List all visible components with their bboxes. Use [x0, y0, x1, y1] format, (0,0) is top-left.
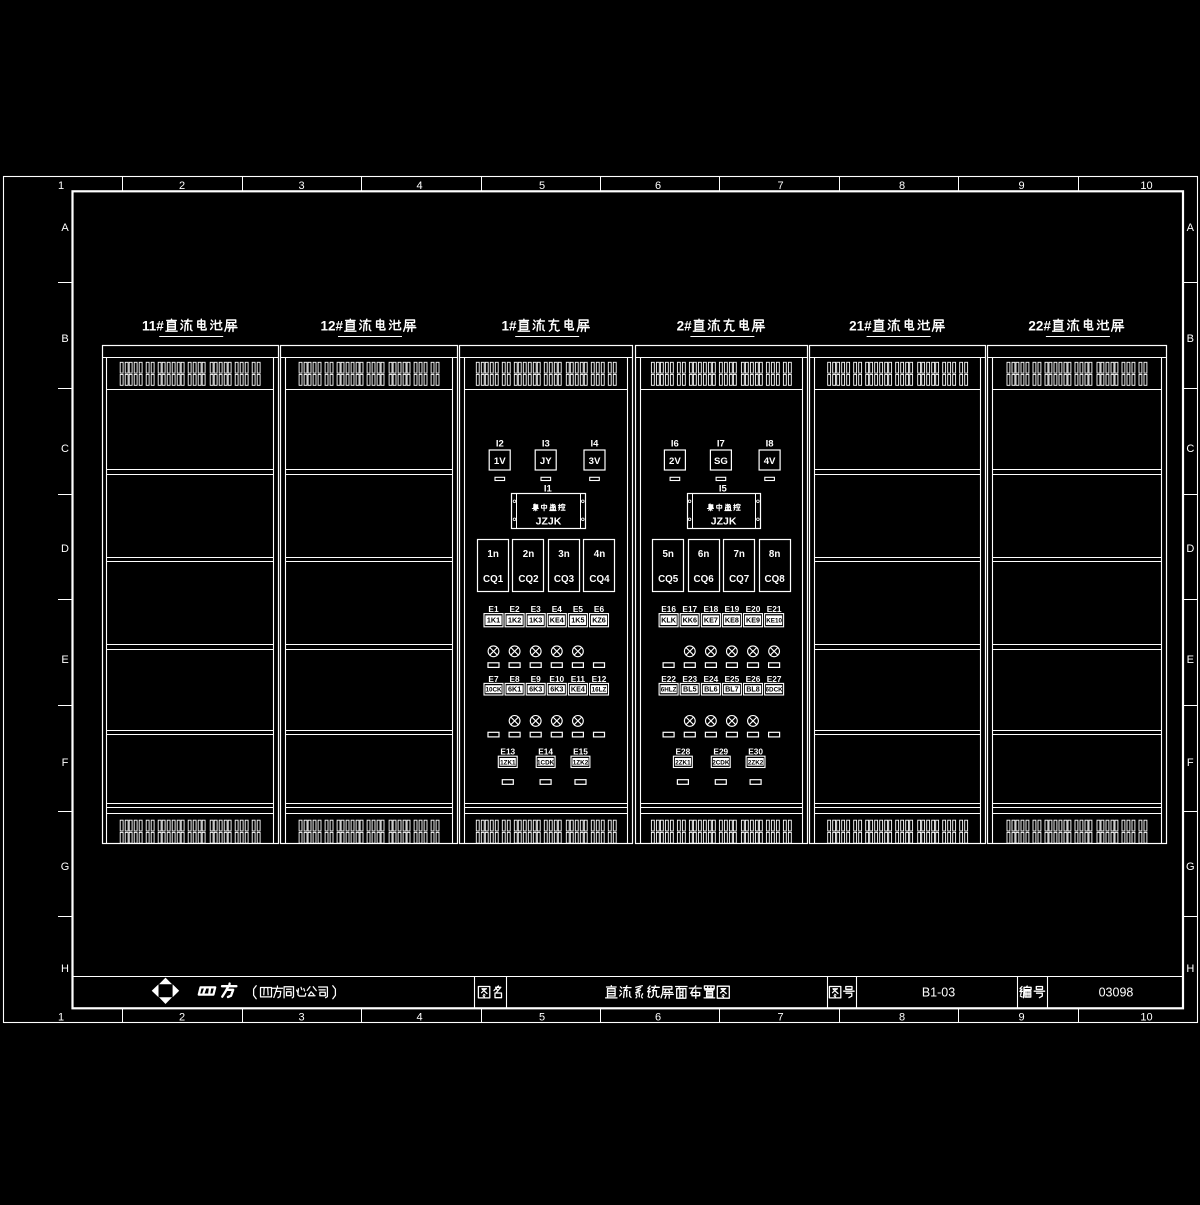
svg-text:G: G	[1186, 861, 1195, 873]
svg-text:E17: E17	[682, 604, 697, 614]
svg-text:E27: E27	[767, 674, 782, 684]
svg-text:KE7: KE7	[704, 616, 718, 625]
svg-text:9: 9	[1018, 1011, 1024, 1023]
svg-text:12#: 12#	[321, 319, 344, 334]
svg-text:E19: E19	[725, 604, 740, 614]
svg-text:4: 4	[416, 180, 422, 192]
svg-text:CQ2: CQ2	[518, 574, 539, 585]
svg-text:2V: 2V	[669, 456, 681, 467]
svg-text:1#: 1#	[501, 319, 517, 334]
svg-text:E15: E15	[573, 747, 588, 757]
svg-text:E: E	[61, 654, 68, 666]
svg-text:E12: E12	[592, 674, 607, 684]
svg-text:5: 5	[539, 180, 545, 192]
svg-text:2ZK2: 2ZK2	[748, 759, 764, 766]
svg-text:6: 6	[655, 180, 661, 192]
svg-text:E14: E14	[538, 747, 553, 757]
svg-text:E: E	[1187, 654, 1194, 666]
svg-text:E9: E9	[531, 674, 542, 684]
svg-text:I6: I6	[671, 438, 679, 449]
svg-text:KE8: KE8	[725, 616, 739, 625]
svg-text:I4: I4	[591, 438, 600, 449]
svg-text:E21: E21	[767, 604, 782, 614]
svg-text:E29: E29	[713, 747, 728, 757]
svg-text:1K1: 1K1	[487, 616, 500, 625]
svg-text:I2: I2	[496, 438, 504, 449]
svg-text:21#: 21#	[849, 319, 872, 334]
svg-text:4: 4	[416, 1011, 422, 1023]
svg-text:E24: E24	[704, 674, 719, 684]
svg-text:7n: 7n	[733, 549, 744, 560]
svg-text:B: B	[1187, 333, 1194, 345]
svg-text:2ZK1: 2ZK1	[675, 759, 691, 766]
svg-text:I8: I8	[766, 438, 774, 449]
svg-text:JZJK: JZJK	[536, 515, 562, 527]
svg-text:E4: E4	[552, 604, 563, 614]
svg-text:6HLZ: 6HLZ	[661, 687, 677, 694]
svg-text:B1-03: B1-03	[922, 986, 955, 1000]
svg-text:6K3: 6K3	[550, 685, 563, 694]
svg-text:6K1: 6K1	[508, 685, 521, 694]
svg-text:G: G	[61, 861, 70, 873]
svg-text:1n: 1n	[487, 549, 498, 560]
svg-text:3: 3	[298, 180, 304, 192]
svg-text:B: B	[61, 333, 68, 345]
svg-text:5: 5	[539, 1011, 545, 1023]
svg-text:5n: 5n	[662, 549, 673, 560]
svg-text:E28: E28	[676, 747, 691, 757]
svg-text:C: C	[61, 443, 69, 455]
svg-text:JZJK: JZJK	[711, 515, 737, 527]
svg-text:2n: 2n	[523, 549, 534, 560]
svg-text:2: 2	[179, 180, 185, 192]
svg-text:CQ3: CQ3	[554, 574, 575, 585]
svg-text:KE9: KE9	[746, 616, 760, 625]
svg-text:2CDK: 2CDK	[712, 759, 730, 766]
svg-text:7: 7	[777, 1011, 783, 1023]
svg-text:1: 1	[58, 1011, 64, 1023]
svg-text:H: H	[61, 963, 69, 975]
svg-text:E16: E16	[661, 604, 676, 614]
svg-text:E7: E7	[488, 674, 499, 684]
svg-text:7: 7	[777, 180, 783, 192]
svg-text:KZ6: KZ6	[592, 616, 606, 625]
svg-text:A: A	[61, 222, 69, 234]
svg-text:E26: E26	[746, 674, 761, 684]
svg-text:F: F	[1187, 757, 1194, 769]
svg-text:D: D	[61, 543, 69, 555]
svg-text:CQ7: CQ7	[729, 574, 750, 585]
svg-text:1: 1	[58, 180, 64, 192]
svg-text:E5: E5	[573, 604, 584, 614]
svg-text:9: 9	[1018, 180, 1024, 192]
svg-text:3V: 3V	[589, 456, 601, 467]
svg-text:D: D	[1186, 543, 1194, 555]
svg-text:KLK: KLK	[661, 616, 677, 625]
svg-text:E2: E2	[510, 604, 521, 614]
svg-text:BL7: BL7	[725, 685, 739, 694]
svg-text:E23: E23	[682, 674, 697, 684]
svg-text:E10: E10	[549, 674, 564, 684]
svg-text:H: H	[1186, 963, 1194, 975]
svg-text:6n: 6n	[698, 549, 709, 560]
svg-text:10: 10	[1140, 180, 1152, 192]
svg-text:SG: SG	[714, 456, 728, 467]
svg-text:10CK: 10CK	[485, 687, 502, 694]
svg-text:CQ4: CQ4	[589, 574, 610, 585]
svg-text:CQ8: CQ8	[765, 574, 786, 585]
svg-text:BL5: BL5	[683, 685, 697, 694]
svg-text:E18: E18	[704, 604, 719, 614]
svg-text:E6: E6	[594, 604, 605, 614]
svg-text:E8: E8	[510, 674, 521, 684]
svg-text:E30: E30	[748, 747, 763, 757]
svg-text:1K3: 1K3	[529, 616, 542, 625]
svg-text:KK6: KK6	[683, 616, 697, 625]
svg-text:JY: JY	[540, 456, 552, 467]
svg-text:E22: E22	[661, 674, 676, 684]
svg-text:E25: E25	[725, 674, 740, 684]
svg-text:6DCK: 6DCK	[766, 687, 784, 694]
svg-text:I5: I5	[719, 483, 728, 494]
svg-text:F: F	[62, 757, 69, 769]
svg-text:2#: 2#	[677, 319, 693, 334]
svg-text:1CDK: 1CDK	[537, 759, 555, 766]
svg-text:E13: E13	[500, 747, 515, 757]
svg-text:6: 6	[655, 1011, 661, 1023]
svg-text:03098: 03098	[1099, 986, 1134, 1000]
svg-text:1K2: 1K2	[508, 616, 521, 625]
svg-text:A: A	[1187, 222, 1195, 234]
svg-text:16LZ: 16LZ	[592, 687, 607, 694]
svg-text:22#: 22#	[1028, 319, 1051, 334]
svg-text:E3: E3	[531, 604, 542, 614]
svg-text:KE4: KE4	[571, 685, 585, 694]
svg-text:I3: I3	[542, 438, 550, 449]
svg-text:E11: E11	[571, 674, 586, 684]
svg-text:I7: I7	[717, 438, 725, 449]
svg-text:1ZK1: 1ZK1	[500, 759, 516, 766]
svg-text:KE4: KE4	[550, 616, 564, 625]
svg-text:CQ5: CQ5	[658, 574, 679, 585]
svg-text:E20: E20	[746, 604, 761, 614]
svg-text:11#: 11#	[142, 319, 164, 334]
svg-text:3n: 3n	[558, 549, 569, 560]
svg-text:8n: 8n	[769, 549, 780, 560]
svg-text:8: 8	[899, 180, 905, 192]
svg-text:KE10: KE10	[766, 618, 782, 625]
svg-text:C: C	[1186, 443, 1194, 455]
svg-text:1K5: 1K5	[571, 616, 584, 625]
svg-text:4V: 4V	[764, 456, 776, 467]
svg-text:BL6: BL6	[704, 685, 718, 694]
svg-text:10: 10	[1140, 1011, 1152, 1023]
svg-text:2: 2	[179, 1011, 185, 1023]
svg-text:E1: E1	[488, 604, 499, 614]
svg-text:BL8: BL8	[746, 685, 760, 694]
svg-text:6K3: 6K3	[529, 685, 542, 694]
svg-text:CQ6: CQ6	[694, 574, 715, 585]
svg-text:1ZK2: 1ZK2	[573, 759, 589, 766]
svg-text:I1: I1	[544, 483, 553, 494]
svg-text:1V: 1V	[494, 456, 506, 467]
svg-text:8: 8	[899, 1011, 905, 1023]
svg-text:CQ1: CQ1	[483, 574, 504, 585]
svg-text:4n: 4n	[594, 549, 605, 560]
svg-text:3: 3	[298, 1011, 304, 1023]
